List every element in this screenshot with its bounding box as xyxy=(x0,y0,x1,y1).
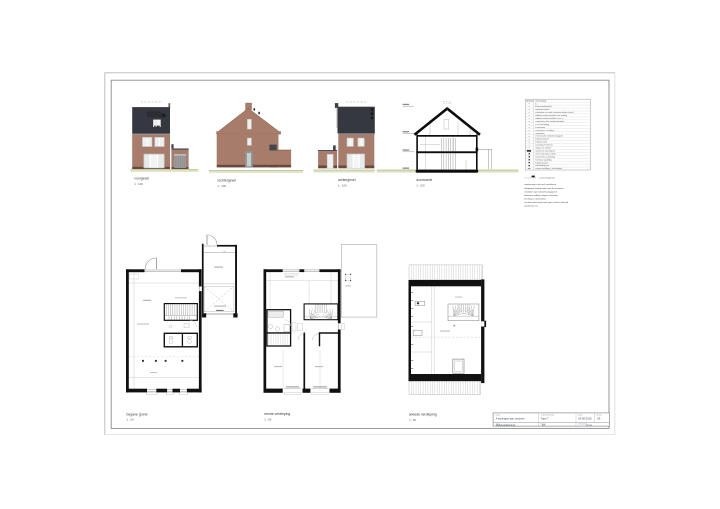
svg-text:= niet in koopsom: = niet in koopsom xyxy=(539,177,555,180)
svg-text:cv-ketel incl. cv-leiding: cv-ketel incl. cv-leiding xyxy=(535,129,553,132)
svg-text:ks: ks xyxy=(535,103,537,105)
svg-text:schakelaar en combi- wandconta: schakelaar en combi- wandcontactdoos (ov… xyxy=(535,111,574,114)
svg-text:rechtergevel: rechtergevel xyxy=(217,179,236,183)
svg-text:positie hwa e.d.: positie hwa e.d. xyxy=(524,205,538,208)
svg-text:maatvoering in het werk contro: maatvoering in het werk controleren xyxy=(524,183,556,186)
svg-text:renvooi installaties - niet bi: renvooi installaties - niet bindend xyxy=(535,167,562,170)
svg-text:Omschrijving: Omschrijving xyxy=(535,100,546,103)
svg-text:voorgevel: voorgevel xyxy=(134,177,149,181)
svg-text:Verkooptekening: Verkooptekening xyxy=(496,423,516,427)
svg-text:1 : 100: 1 : 100 xyxy=(416,183,425,187)
svg-text:dubbele wandcontactdoos met aa: dubbele wandcontactdoos met aarding xyxy=(535,114,567,117)
svg-text:kabelinvoerpunt: kabelinvoerpunt xyxy=(535,161,549,164)
svg-text:1 : 100: 1 : 100 xyxy=(338,184,347,188)
svg-text:dubbele wandcontactdoos t.b.v.: dubbele wandcontactdoos t.b.v. cv xyxy=(535,117,563,120)
svg-text:xx.xx: xx.xx xyxy=(586,424,593,427)
svg-text:wasmachine aansluiting: wasmachine aansluiting xyxy=(535,155,555,158)
svg-text:achtergevel: achtergevel xyxy=(338,178,356,182)
svg-text:doorsnede: doorsnede xyxy=(416,178,432,182)
svg-text:meterkast opstelling: meterkast opstelling xyxy=(535,158,551,161)
svg-text:installaties zijn indicatief a: installaties zijn indicatief aangegeven xyxy=(524,191,557,194)
svg-text:1 : 100: 1 : 100 xyxy=(134,182,143,186)
svg-text:lichtpunt wand: lichtpunt wand xyxy=(535,141,547,144)
svg-text:kastencombinatie(s): kastencombinatie(s) xyxy=(535,105,552,108)
svg-text:definitieve indeling volgens u: definitieve indeling volgens uitwerking xyxy=(524,194,557,197)
svg-text:1 : 50: 1 : 50 xyxy=(127,418,134,422)
svg-text:Type 7: Type 7 xyxy=(541,417,549,421)
svg-text:4 woningen aan Leusven: 4 woningen aan Leusven xyxy=(496,417,525,421)
svg-text:radiator en verdeler: radiator en verdeler xyxy=(535,147,551,150)
svg-text:Symbool: Symbool xyxy=(526,101,534,103)
svg-text:wandcontactdoos: wandcontactdoos xyxy=(535,108,549,111)
svg-text:waterkraan aansluitpunt: waterkraan aansluitpunt xyxy=(535,149,555,152)
svg-text:wijzigingen voorbehouden aan d: wijzigingen voorbehouden aan de aannemer xyxy=(524,188,564,190)
svg-text:1 : 50: 1 : 50 xyxy=(409,418,416,422)
svg-text:thermostaat: thermostaat xyxy=(535,126,545,129)
svg-text:mechanische ventilatie afzuigp: mechanische ventilatie afzuigpunt xyxy=(535,135,563,138)
svg-text:tweede verdieping: tweede verdieping xyxy=(409,413,437,417)
svg-text:vloerverwarming verdeler: vloerverwarming verdeler xyxy=(535,152,556,155)
svg-text:aansluitpunt telefonie: aansluitpunt telefonie xyxy=(535,144,552,147)
svg-text:5x: 5x xyxy=(224,251,226,253)
svg-text:eerste verdieping: eerste verdieping xyxy=(264,412,290,416)
svg-text:02-06-2016: 02-06-2016 xyxy=(578,417,592,421)
svg-text:combinatie cv/mv wandcontactdo: combinatie cv/mv wandcontactdoos xyxy=(535,120,564,123)
svg-text:aan deze tekening kunnen geen: aan deze tekening kunnen geen rechten on… xyxy=(524,201,568,204)
svg-text:rookmelder: rookmelder xyxy=(535,132,545,135)
svg-text:1 : 100: 1 : 100 xyxy=(217,184,226,188)
svg-text:1 : 50: 1 : 50 xyxy=(264,418,271,422)
svg-text:n.v.t. loze leiding: n.v.t. loze leiding xyxy=(535,123,549,126)
svg-text:A3: A3 xyxy=(597,417,601,421)
svg-text:inrichting is niet bindend: inrichting is niet bindend xyxy=(524,198,545,201)
svg-text:lichtpunt plafond: lichtpunt plafond xyxy=(535,138,548,141)
svg-text:begane grond: begane grond xyxy=(127,412,148,416)
svg-text:standleiding hwa: standleiding hwa xyxy=(535,164,550,167)
